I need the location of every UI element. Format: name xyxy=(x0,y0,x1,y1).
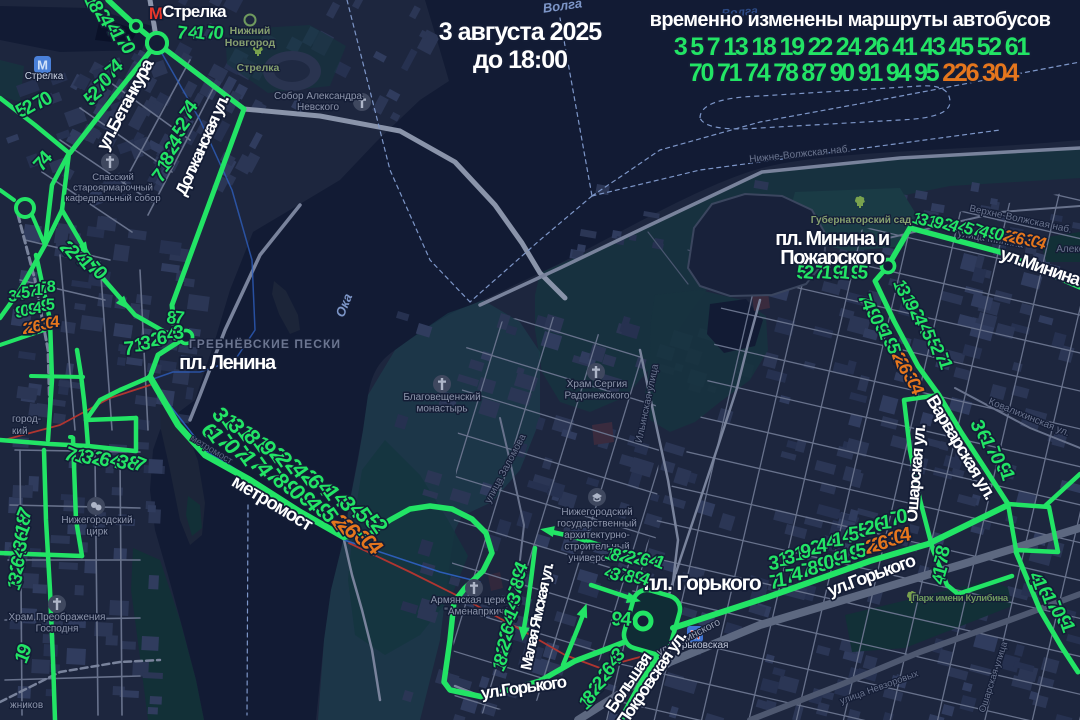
svg-text:3 5 7 13 18 19 22 24 26 41 43: 3 5 7 13 18 19 22 24 26 41 43 45 52 61 xyxy=(674,33,1031,61)
svg-text:временно изменены маршруты авт: временно изменены маршруты автобусов xyxy=(650,9,1051,31)
svg-text:3 августа 2025: 3 августа 2025 xyxy=(439,18,603,46)
svg-text:Губернаторский сад: Губернаторский сад xyxy=(811,214,912,226)
svg-text:пл. Горького: пл. Горького xyxy=(643,572,760,595)
svg-text:пл. Ленина: пл. Ленина xyxy=(179,352,277,374)
svg-text:кий: кий xyxy=(12,426,28,437)
svg-text:жников: жников xyxy=(10,700,43,711)
svg-text:Стрелка: Стрелка xyxy=(162,2,227,21)
svg-text:52 71 91 95: 52 71 91 95 xyxy=(795,262,869,284)
svg-text:ГРЕБНЁВСКИЕ ПЕСКИ: ГРЕБНЁВСКИЕ ПЕСКИ xyxy=(189,336,341,351)
svg-text:Парк имени Кулибина: Парк имени Кулибина xyxy=(912,593,1009,604)
svg-text:НижнийНовгород: НижнийНовгород xyxy=(225,25,276,49)
svg-text:Стрелка: Стрелка xyxy=(237,62,280,74)
svg-text:до 18:00: до 18:00 xyxy=(473,46,567,74)
svg-text:М: М xyxy=(149,4,163,23)
svg-text:Стрелка: Стрелка xyxy=(25,71,64,82)
svg-text:Алекс: Алекс xyxy=(1056,244,1080,255)
svg-text:7 41 70: 7 41 70 xyxy=(176,21,225,43)
svg-text:70 71 74 78 87 90 91 94 95 226: 70 71 74 78 87 90 91 94 95 226 304 xyxy=(689,59,1020,87)
svg-text:Храм СергияРадонежского: Храм СергияРадонежского xyxy=(565,379,630,402)
svg-text:город-: город- xyxy=(12,414,41,425)
